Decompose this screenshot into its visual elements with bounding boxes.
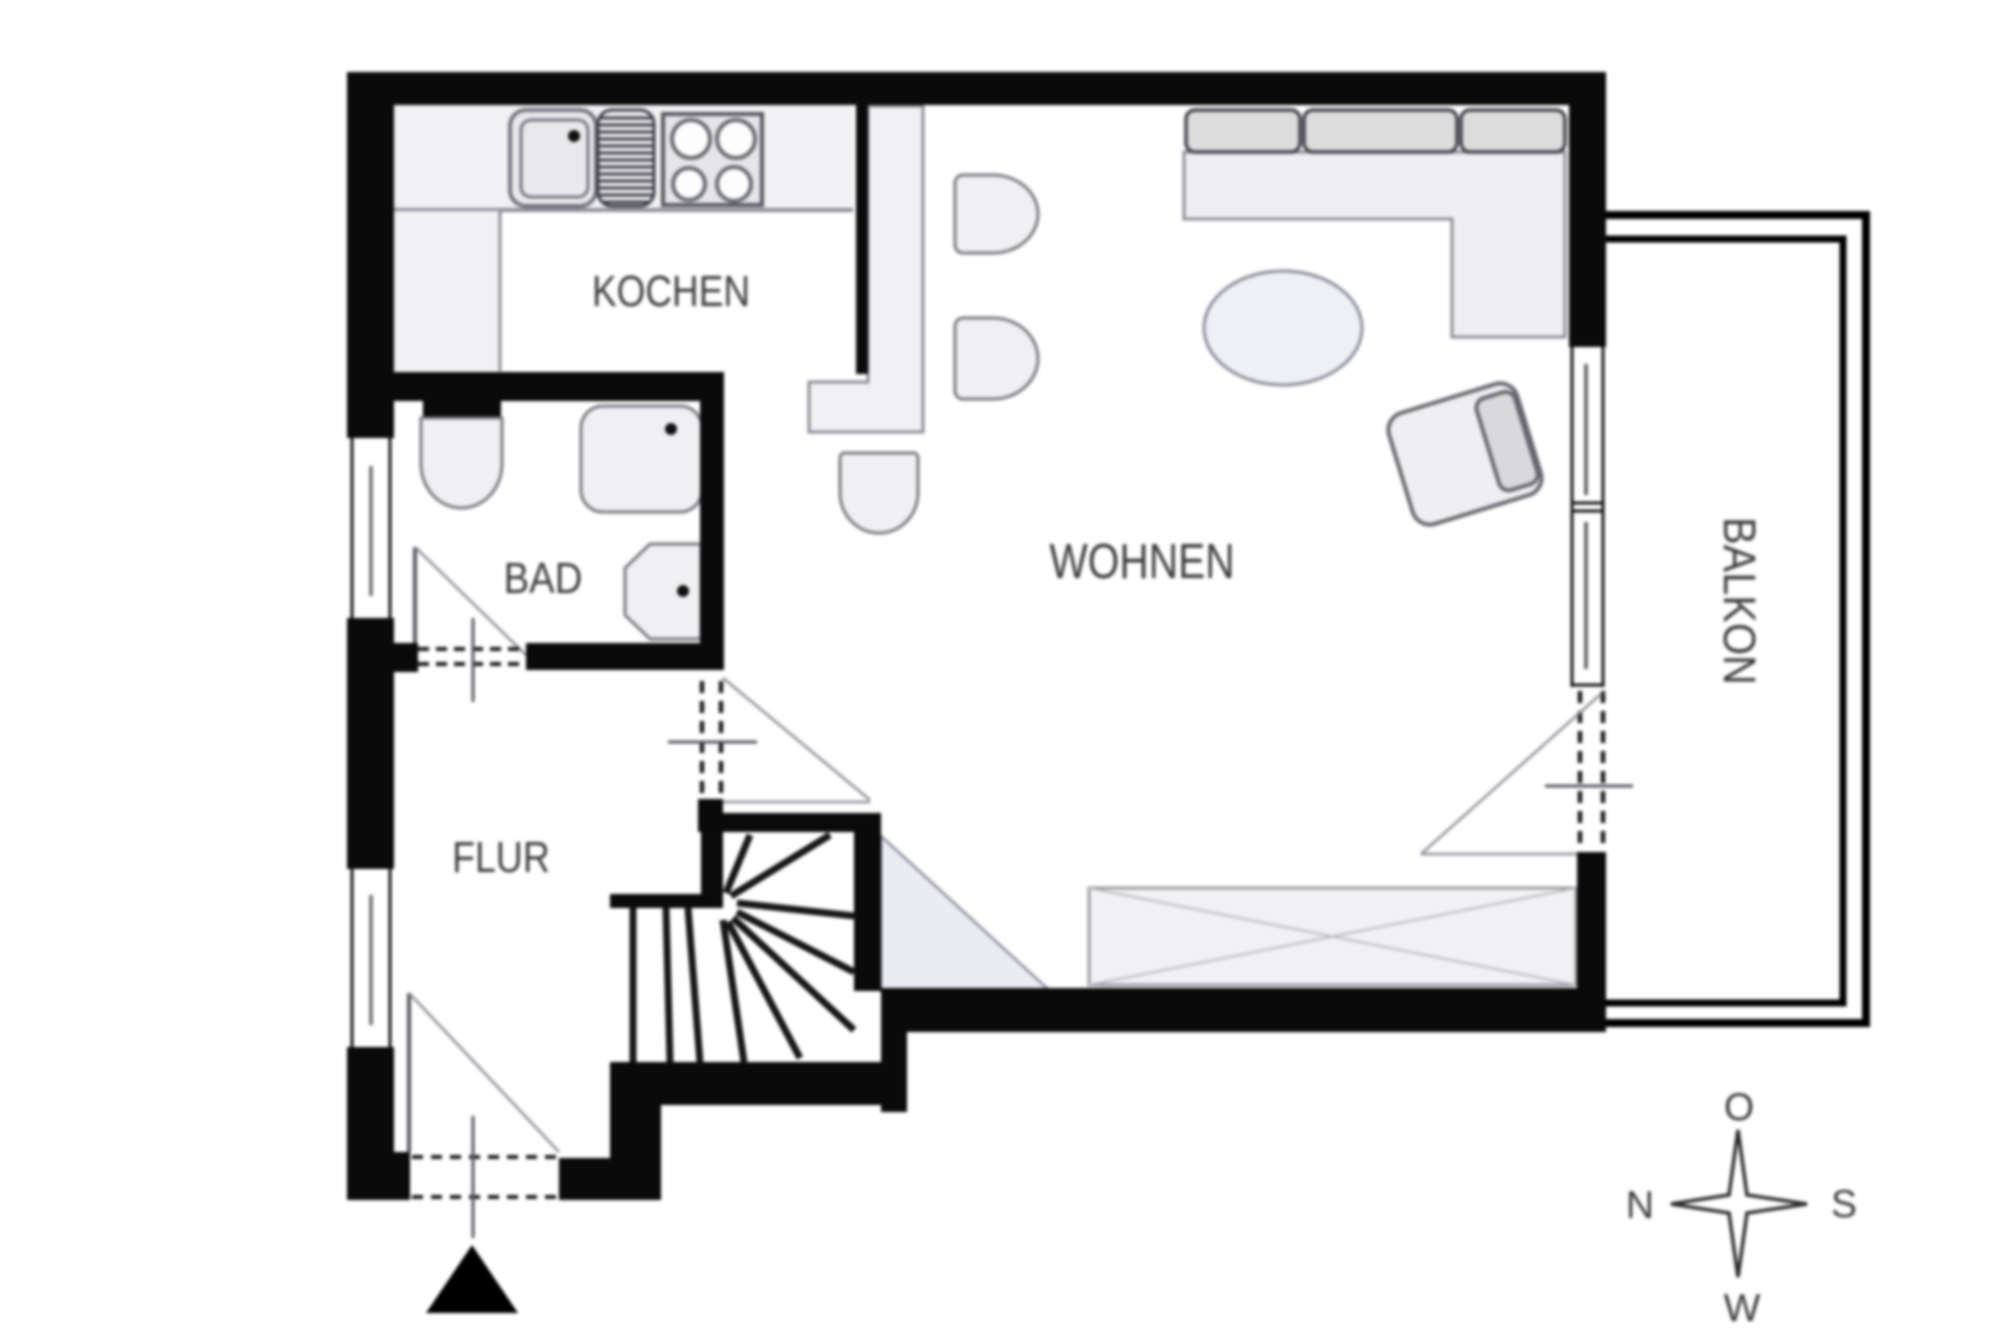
svg-text:BAD: BAD	[504, 554, 583, 603]
svg-text:KOCHEN: KOCHEN	[592, 266, 750, 316]
svg-text:S: S	[1831, 1183, 1857, 1226]
svg-text:WOHNEN: WOHNEN	[1049, 533, 1234, 588]
svg-text:FLUR: FLUR	[452, 832, 550, 882]
svg-text:W: W	[1724, 1287, 1761, 1330]
svg-text:N: N	[1626, 1184, 1654, 1227]
svg-text:O: O	[1724, 1086, 1754, 1129]
svg-text:BALKON: BALKON	[1714, 517, 1764, 685]
